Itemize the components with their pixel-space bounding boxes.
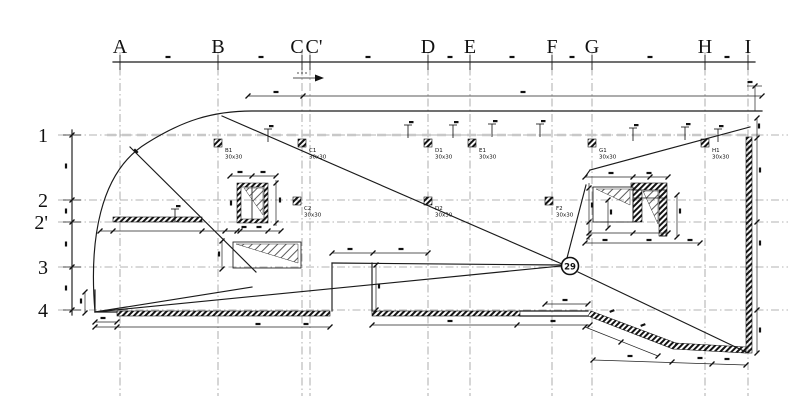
grid-row-label-2-prime: 2' (34, 212, 48, 234)
grid-row-label-1: 1 (38, 125, 48, 147)
column-marker-id: B1 (225, 148, 232, 154)
column-marker-id: D1 (435, 148, 443, 154)
grid-col-label-d: D (421, 36, 435, 58)
structural-plan-drawing: B130x30C130x30D130x30E130x30G130x30H130x… (0, 0, 800, 403)
grid-col-label-g: G (585, 36, 599, 58)
grid-col-label-e: E (464, 36, 476, 58)
node-callout: 29 (562, 258, 579, 275)
detail-sections (233, 183, 667, 268)
column-marker-size: 30x30 (304, 213, 322, 219)
node-number: 29 (564, 263, 576, 273)
grid-row-label-4: 4 (38, 300, 48, 322)
grid-col-label-b: B (211, 36, 224, 58)
column-marker-id: G1 (599, 148, 607, 154)
grid-col-label-a: A (113, 36, 128, 58)
column-marker-size: 30x30 (309, 155, 327, 161)
column-marker: E130x30 (468, 139, 497, 161)
grid-col-label-c: C (290, 36, 303, 58)
column-marker-size: 30x30 (435, 213, 453, 219)
column-marker-id: H1 (712, 148, 720, 154)
grid-col-label-h: H (698, 36, 712, 58)
grid-row-labels: 1 2 2' 3 4 (34, 125, 48, 322)
grid-row-label-3: 3 (38, 257, 48, 279)
grid-row-label-2: 2 (38, 190, 48, 212)
column-marker-id: E1 (479, 148, 486, 154)
column-marker-size: 30x30 (556, 213, 574, 219)
column-marker-id: F2 (556, 206, 563, 212)
column-marker-size: 30x30 (712, 155, 730, 161)
column-marker-id: C1 (309, 148, 316, 154)
column-marker-id: C2 (304, 206, 311, 212)
column-marker-size: 30x30 (225, 155, 243, 161)
column-marker-size: 30x30 (435, 155, 453, 161)
grid-col-label-c-prime: C' (306, 36, 323, 58)
column-marker-size: 30x30 (479, 155, 497, 161)
grid-col-label-f: F (546, 36, 557, 58)
column-marker-size: 30x30 (599, 155, 617, 161)
drawing-canvas: B130x30C130x30D130x30E130x30G130x30H130x… (0, 0, 800, 403)
column-marker-id: D2 (435, 206, 443, 212)
grid-col-label-i: I (745, 36, 752, 58)
grid-column-labels: A B C C' D E F G H I (113, 36, 752, 58)
hatched-members (113, 137, 752, 353)
